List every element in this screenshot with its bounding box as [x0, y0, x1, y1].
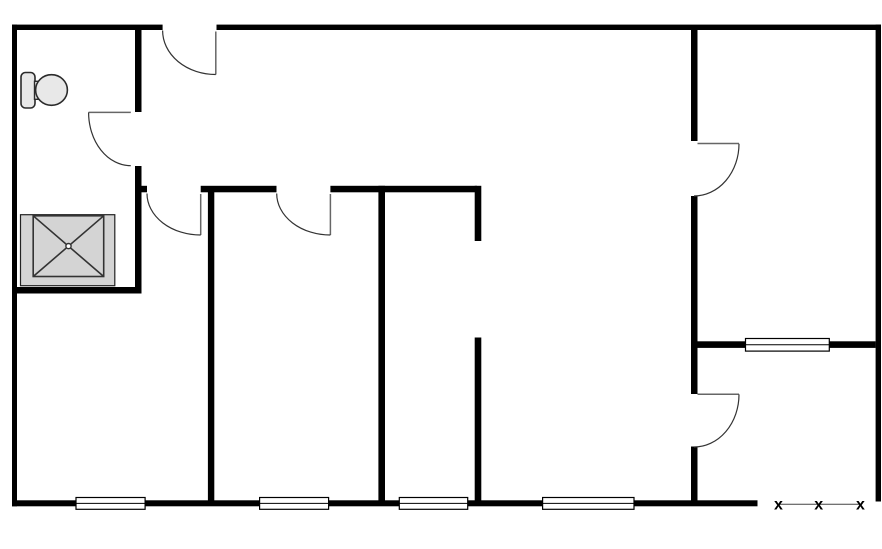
svg-text:x: x: [814, 497, 823, 514]
svg-text:x: x: [856, 497, 865, 514]
svg-text:x: x: [774, 497, 783, 514]
